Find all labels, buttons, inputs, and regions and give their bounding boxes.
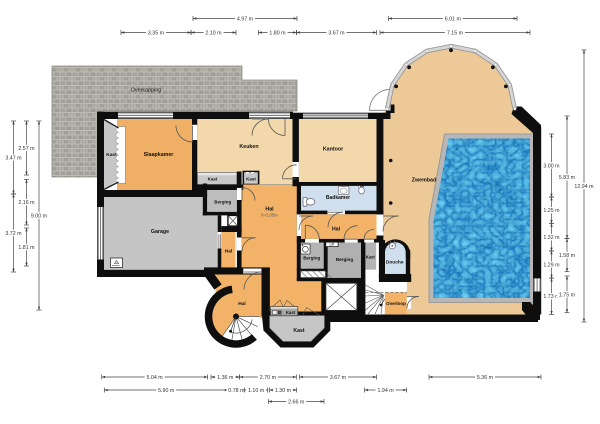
svg-text:Slaapkamer: Slaapkamer: [144, 152, 174, 158]
svg-text:12.94 m: 12.94 m: [574, 184, 594, 190]
svg-text:4.97 m: 4.97 m: [237, 17, 254, 23]
svg-text:Kantoor: Kantoor: [323, 147, 343, 153]
svg-text:2.10 m: 2.10 m: [205, 31, 222, 37]
svg-text:Kast: Kast: [286, 310, 296, 315]
svg-text:Hal: Hal: [332, 227, 341, 233]
svg-text:9.00 m: 9.00 m: [31, 214, 48, 220]
svg-text:3.47 m: 3.47 m: [5, 156, 22, 162]
svg-text:Badkamer: Badkamer: [326, 195, 350, 201]
svg-text:6.01 m: 6.01 m: [445, 17, 462, 23]
svg-text:2.70 m: 2.70 m: [260, 375, 277, 381]
svg-text:5.83 m: 5.83 m: [559, 175, 576, 181]
svg-text:Berging: Berging: [336, 257, 354, 262]
svg-text:1.58 m: 1.58 m: [559, 253, 576, 259]
svg-text:3.35 m: 3.35 m: [148, 31, 165, 37]
svg-text:1.29 m: 1.29 m: [543, 263, 560, 269]
svg-text:Hal: Hal: [225, 248, 232, 254]
svg-text:Overloop: Overloop: [386, 301, 406, 306]
svg-text:1.30 m: 1.30 m: [275, 388, 292, 394]
svg-text:2.16 m: 2.16 m: [18, 200, 35, 206]
svg-text:Kast: Kast: [106, 152, 117, 158]
svg-text:2.57 m: 2.57 m: [18, 146, 35, 152]
svg-text:5.36 m: 5.36 m: [477, 375, 494, 381]
svg-text:Zwembad: Zwembad: [412, 178, 436, 184]
svg-text:1.10 m: 1.10 m: [248, 388, 265, 394]
svg-text:Kast: Kast: [366, 254, 376, 259]
svg-text:Keuken: Keuken: [239, 144, 258, 150]
svg-text:Berging: Berging: [214, 199, 231, 204]
svg-text:3.67 m: 3.67 m: [328, 31, 345, 37]
svg-text:1.25 m: 1.25 m: [543, 208, 560, 214]
svg-text:Douche: Douche: [386, 260, 404, 266]
svg-text:0.78 m: 0.78 m: [228, 388, 245, 394]
svg-text:7.15 m: 7.15 m: [447, 31, 464, 37]
svg-text:5.90 m: 5.90 m: [158, 388, 175, 394]
svg-text:Hal: Hal: [238, 301, 245, 307]
svg-text:Kast: Kast: [246, 177, 256, 182]
svg-text:1.81 m: 1.81 m: [18, 245, 35, 251]
svg-text:Garage: Garage: [151, 229, 169, 235]
svg-text:1.94 m: 1.94 m: [377, 388, 394, 394]
svg-text:1.36 m: 1.36 m: [217, 375, 234, 381]
svg-text:1.75 m: 1.75 m: [559, 292, 576, 298]
svg-text:3.67 m: 3.67 m: [330, 375, 347, 381]
svg-text:Berging: Berging: [303, 256, 320, 261]
svg-text:3.72 m: 3.72 m: [5, 231, 22, 237]
svg-text:Kast: Kast: [208, 177, 218, 182]
svg-text:Kast: Kast: [293, 328, 305, 334]
svg-text:5.04 m: 5.04 m: [146, 375, 163, 381]
svg-text:1.32 m: 1.32 m: [543, 235, 560, 241]
svg-text:Overkapping: Overkapping: [131, 88, 162, 94]
svg-text:3.00 m: 3.00 m: [543, 164, 560, 170]
svg-text:Lift: Lift: [330, 243, 335, 247]
svg-text:h=2,05m: h=2,05m: [261, 213, 278, 218]
svg-text:1.80 m: 1.80 m: [269, 31, 286, 37]
svg-text:2.66 m: 2.66 m: [288, 400, 305, 406]
